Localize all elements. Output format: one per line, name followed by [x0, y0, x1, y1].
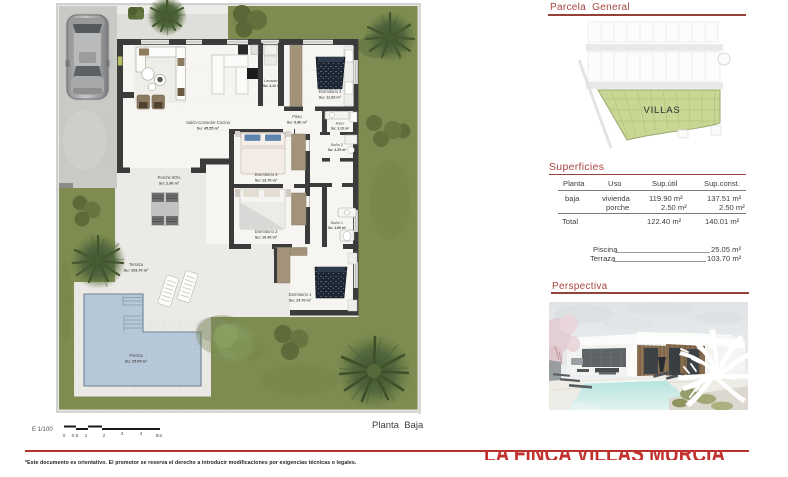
svg-text:Su: 10.40 m²: Su: 10.40 m² [255, 236, 278, 240]
svg-text:Su: 3.10 m²: Su: 3.10 m² [331, 127, 350, 131]
svg-text:Aseo: Aseo [336, 122, 345, 126]
svg-text:Dormitorio 2: Dormitorio 2 [255, 229, 278, 234]
svg-text:Dormitorio 3: Dormitorio 3 [255, 172, 278, 177]
svg-text:Su: 14.70 m²: Su: 14.70 m² [289, 299, 312, 303]
svg-text:3: 3 [121, 431, 124, 437]
svg-text:2: 2 [103, 433, 106, 439]
svg-text:5m: 5m [156, 433, 163, 439]
svg-text:E 1/100: E 1/100 [32, 427, 53, 433]
svg-text:Su: 4.35 m²: Su: 4.35 m² [328, 148, 347, 152]
svg-text:4: 4 [140, 431, 143, 437]
svg-text:0.5: 0.5 [72, 433, 79, 439]
svg-text:Su: 45.55 m²: Su: 45.55 m² [197, 127, 220, 131]
svg-text:Su: 4.60 m²: Su: 4.60 m² [328, 226, 347, 230]
svg-text:Porche 50%: Porche 50% [158, 175, 181, 180]
svg-text:Su: 2.90 m²: Su: 2.90 m² [159, 182, 180, 186]
svg-text:Su: 103.70 m²: Su: 103.70 m² [124, 269, 149, 273]
svg-text:1: 1 [85, 433, 88, 439]
svg-text:Planta Baja: Planta Baja [372, 420, 424, 431]
svg-text:Su: 13.70 m²: Su: 13.70 m² [255, 179, 278, 183]
svg-text:Baño 2: Baño 2 [331, 143, 343, 147]
svg-text:Piscina: Piscina [129, 353, 143, 358]
svg-text:Lavadero: Lavadero [264, 79, 280, 83]
svg-text:Paso: Paso [292, 114, 302, 119]
svg-text:Dormitorio 4: Dormitorio 4 [319, 89, 342, 94]
svg-text:0: 0 [63, 433, 66, 439]
svg-text:Dormitorio 1: Dormitorio 1 [289, 292, 312, 297]
svg-text:Su: 9.80 m²: Su: 9.80 m² [287, 121, 308, 125]
svg-text:Baño 1: Baño 1 [331, 221, 343, 225]
svg-text:Terraza: Terraza [129, 262, 144, 267]
svg-text:Su: 11.93 m²: Su: 11.93 m² [319, 96, 342, 100]
svg-text:VILLAS: VILLAS [643, 105, 680, 116]
svg-text:Su: 3.10 m²: Su: 3.10 m² [263, 84, 282, 88]
svg-text:Su: 25.05 m²: Su: 25.05 m² [125, 360, 148, 364]
svg-text:Salón-Comedor-Cocina: Salón-Comedor-Cocina [186, 120, 230, 125]
